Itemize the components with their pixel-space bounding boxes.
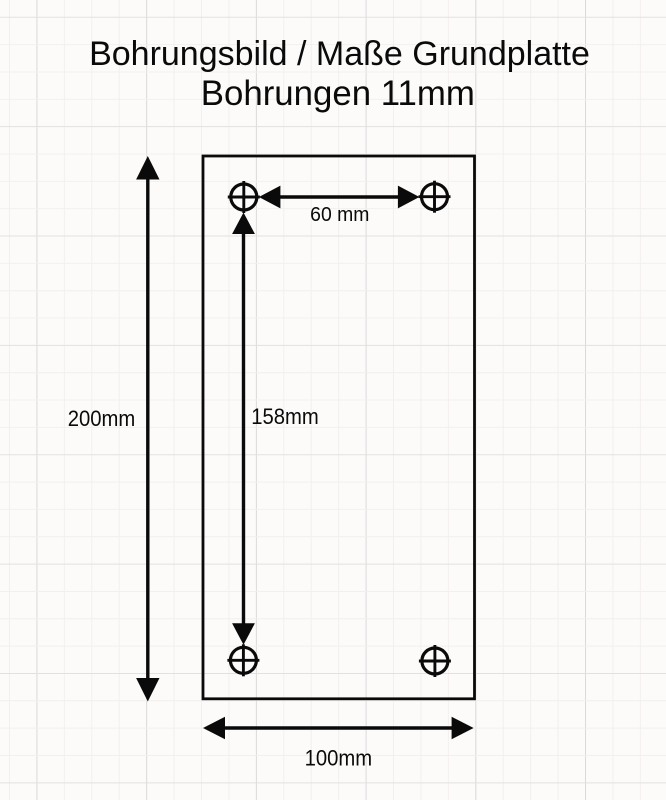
svg-text:60 mm: 60 mm [310, 204, 369, 226]
svg-text:Bohrungen 11mm: Bohrungen 11mm [201, 74, 475, 113]
svg-text:Bohrungsbild / Maße Grundplatt: Bohrungsbild / Maße Grundplatte [89, 35, 590, 73]
svg-text:100mm: 100mm [305, 746, 373, 771]
svg-text:158mm: 158mm [251, 404, 319, 429]
svg-text:200mm: 200mm [68, 406, 136, 431]
